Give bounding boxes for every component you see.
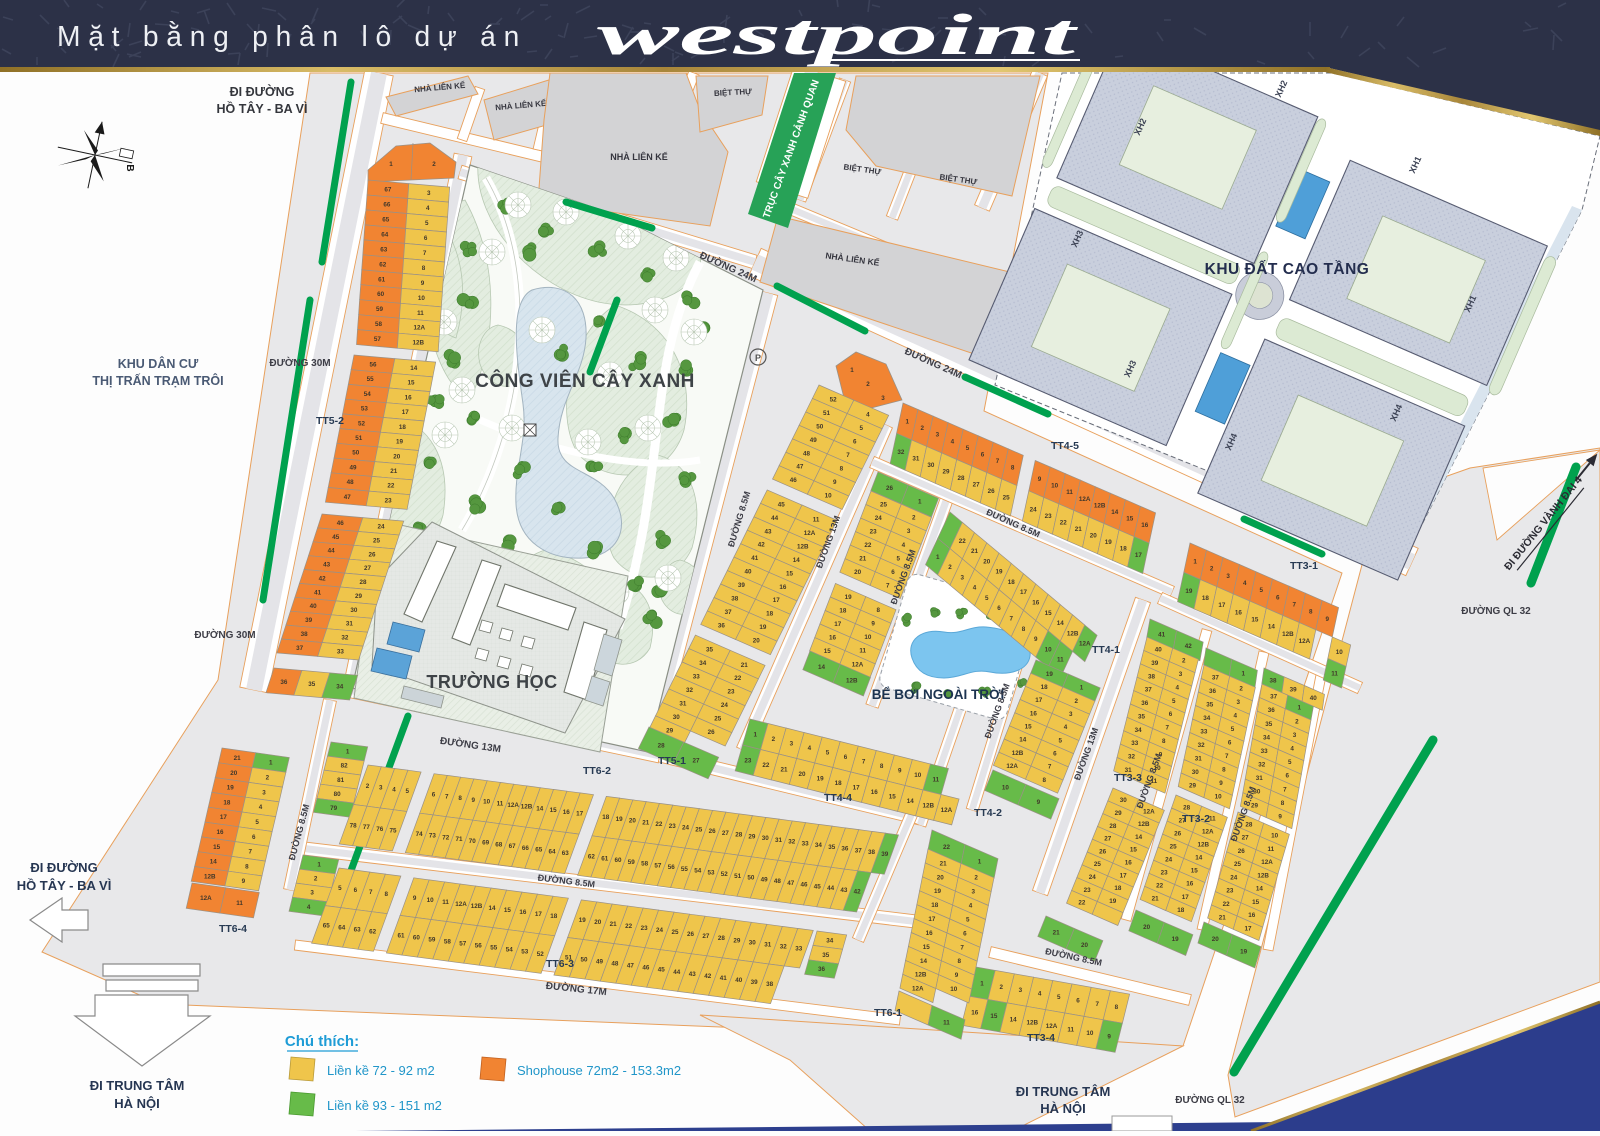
svg-text:22: 22 — [655, 821, 663, 828]
svg-text:40: 40 — [735, 977, 743, 984]
svg-text:39: 39 — [305, 617, 313, 624]
svg-text:26: 26 — [1174, 830, 1182, 837]
svg-text:35: 35 — [822, 952, 830, 959]
svg-text:8: 8 — [877, 607, 881, 614]
svg-text:20: 20 — [854, 569, 862, 576]
svg-text:14: 14 — [1268, 624, 1276, 631]
svg-text:5: 5 — [425, 220, 429, 227]
svg-text:10: 10 — [1336, 649, 1344, 656]
svg-text:46: 46 — [800, 882, 808, 889]
svg-text:10: 10 — [825, 492, 833, 499]
svg-text:8: 8 — [1309, 609, 1313, 616]
svg-text:26: 26 — [708, 729, 716, 736]
svg-text:NHÀ LIÊN KẾ: NHÀ LIÊN KẾ — [610, 151, 668, 162]
svg-text:18: 18 — [1041, 684, 1049, 691]
svg-text:5: 5 — [1288, 759, 1292, 766]
svg-text:21: 21 — [1053, 930, 1061, 937]
svg-text:23: 23 — [1084, 887, 1092, 894]
svg-text:54: 54 — [506, 947, 514, 954]
svg-text:2: 2 — [1210, 566, 1214, 573]
svg-text:5: 5 — [985, 595, 989, 602]
svg-text:24: 24 — [1230, 875, 1238, 882]
svg-text:65: 65 — [382, 216, 390, 223]
svg-text:28: 28 — [1183, 804, 1191, 811]
svg-text:46: 46 — [642, 965, 650, 972]
svg-text:7: 7 — [886, 582, 890, 589]
svg-text:TRƯỜNG HỌC: TRƯỜNG HỌC — [426, 671, 557, 692]
svg-text:14: 14 — [1019, 737, 1027, 744]
svg-text:76: 76 — [376, 826, 384, 833]
svg-text:80: 80 — [334, 791, 342, 798]
svg-text:10: 10 — [950, 986, 958, 993]
svg-text:12A: 12A — [455, 901, 467, 908]
svg-text:16: 16 — [971, 1010, 979, 1017]
svg-text:55: 55 — [490, 945, 498, 952]
svg-text:TT4-4: TT4-4 — [824, 792, 852, 804]
svg-text:3: 3 — [310, 890, 314, 897]
svg-text:12B: 12B — [1282, 631, 1294, 638]
svg-text:1: 1 — [389, 161, 393, 168]
svg-text:11: 11 — [1209, 816, 1216, 823]
svg-text:19: 19 — [1105, 539, 1113, 546]
svg-text:2: 2 — [999, 984, 1003, 991]
svg-text:17: 17 — [1182, 894, 1190, 901]
svg-text:1: 1 — [754, 731, 758, 738]
svg-text:59: 59 — [628, 859, 636, 866]
svg-text:50: 50 — [352, 450, 360, 457]
svg-text:30: 30 — [673, 714, 681, 721]
svg-text:36: 36 — [1209, 688, 1217, 695]
svg-text:23: 23 — [641, 925, 649, 932]
svg-text:10: 10 — [1086, 1030, 1094, 1037]
svg-text:54: 54 — [364, 391, 372, 398]
svg-text:30: 30 — [762, 835, 770, 842]
svg-text:8: 8 — [385, 891, 389, 898]
svg-text:45: 45 — [814, 883, 822, 890]
svg-text:2: 2 — [912, 515, 916, 522]
svg-text:15: 15 — [1025, 723, 1033, 730]
svg-text:31: 31 — [679, 700, 687, 707]
svg-text:18: 18 — [1120, 546, 1128, 553]
svg-text:20: 20 — [594, 919, 602, 926]
svg-text:8: 8 — [245, 863, 249, 870]
svg-text:19: 19 — [579, 917, 587, 924]
svg-text:TT4-5: TT4-5 — [1051, 440, 1079, 452]
svg-text:Chú thích:: Chú thích: — [285, 1033, 359, 1050]
svg-text:23: 23 — [870, 529, 878, 536]
svg-text:12B: 12B — [471, 903, 483, 910]
svg-text:48: 48 — [774, 878, 782, 885]
svg-text:77: 77 — [363, 824, 371, 831]
svg-text:12A: 12A — [1006, 763, 1018, 770]
svg-text:19: 19 — [934, 888, 942, 895]
svg-text:67: 67 — [384, 187, 392, 194]
svg-text:22: 22 — [734, 675, 742, 682]
svg-text:49: 49 — [596, 959, 604, 966]
svg-text:41: 41 — [751, 555, 759, 562]
svg-text:56: 56 — [668, 864, 676, 871]
svg-text:49: 49 — [810, 437, 818, 444]
svg-text:81: 81 — [337, 777, 345, 784]
svg-text:3: 3 — [1069, 711, 1073, 718]
svg-text:20: 20 — [393, 453, 401, 460]
svg-text:6: 6 — [1076, 997, 1080, 1004]
svg-text:14: 14 — [1010, 1016, 1018, 1023]
svg-text:4: 4 — [1064, 724, 1068, 731]
svg-text:40: 40 — [310, 603, 318, 610]
svg-text:51: 51 — [823, 410, 831, 417]
svg-text:1: 1 — [918, 498, 922, 505]
svg-text:19: 19 — [995, 569, 1003, 576]
svg-text:60: 60 — [377, 291, 385, 298]
svg-text:westpoint: westpoint — [597, 2, 1079, 67]
svg-text:14: 14 — [410, 365, 418, 372]
svg-text:17: 17 — [1020, 589, 1028, 596]
svg-text:15: 15 — [504, 907, 512, 914]
svg-text:19: 19 — [1185, 588, 1193, 595]
svg-text:9: 9 — [833, 479, 837, 486]
svg-text:19: 19 — [396, 439, 404, 446]
svg-text:38: 38 — [731, 596, 739, 603]
svg-text:59: 59 — [428, 937, 436, 944]
svg-text:22: 22 — [1223, 901, 1231, 908]
svg-text:1: 1 — [1242, 670, 1246, 677]
svg-text:17: 17 — [535, 911, 543, 918]
svg-text:P: P — [755, 353, 761, 363]
svg-text:21: 21 — [741, 662, 749, 669]
svg-text:10: 10 — [1051, 483, 1059, 490]
svg-text:12B: 12B — [413, 340, 425, 347]
svg-text:9: 9 — [1325, 616, 1329, 623]
svg-text:60: 60 — [614, 857, 622, 864]
svg-text:28: 28 — [718, 935, 726, 942]
svg-text:50: 50 — [747, 875, 755, 882]
svg-text:5: 5 — [1058, 737, 1062, 744]
svg-text:53: 53 — [707, 869, 715, 876]
svg-text:5: 5 — [338, 885, 342, 892]
svg-text:75: 75 — [389, 828, 397, 835]
svg-text:37: 37 — [855, 847, 863, 854]
svg-text:35: 35 — [308, 681, 316, 688]
svg-text:14: 14 — [210, 859, 218, 866]
svg-text:3: 3 — [936, 432, 940, 439]
svg-text:11: 11 — [1057, 657, 1064, 664]
svg-text:2: 2 — [1239, 686, 1243, 693]
svg-text:17: 17 — [220, 814, 228, 821]
svg-text:30: 30 — [350, 607, 358, 614]
svg-text:ĐƯỜNG QL 32: ĐƯỜNG QL 32 — [1175, 1093, 1245, 1106]
svg-text:20: 20 — [230, 770, 238, 777]
svg-text:18: 18 — [1008, 579, 1016, 586]
svg-text:9: 9 — [1278, 814, 1282, 821]
svg-text:25: 25 — [671, 929, 679, 936]
svg-text:TT6-1: TT6-1 — [874, 1007, 902, 1019]
svg-text:14: 14 — [920, 958, 928, 965]
svg-text:30: 30 — [927, 462, 935, 469]
svg-text:20: 20 — [1143, 924, 1151, 931]
svg-text:17: 17 — [1120, 872, 1128, 879]
svg-text:29: 29 — [748, 833, 756, 840]
svg-text:2: 2 — [974, 875, 978, 882]
svg-text:40: 40 — [1310, 695, 1318, 702]
svg-text:15: 15 — [786, 570, 794, 577]
svg-text:1: 1 — [906, 419, 910, 426]
svg-text:8: 8 — [1162, 738, 1166, 745]
svg-text:51: 51 — [355, 435, 363, 442]
svg-text:Mặt bằng phân lô dự án: Mặt bằng phân lô dự án — [57, 20, 527, 53]
svg-text:7: 7 — [1048, 764, 1052, 771]
svg-text:62: 62 — [379, 261, 387, 268]
svg-text:49: 49 — [761, 876, 769, 883]
svg-text:38: 38 — [868, 849, 876, 856]
svg-text:19: 19 — [1109, 898, 1117, 905]
svg-text:5: 5 — [966, 917, 970, 924]
svg-text:15: 15 — [990, 1013, 998, 1020]
svg-text:12B: 12B — [1257, 872, 1269, 879]
svg-text:29: 29 — [942, 469, 950, 476]
svg-text:25: 25 — [714, 716, 722, 723]
svg-text:6: 6 — [963, 930, 967, 937]
svg-text:37: 37 — [1145, 687, 1153, 694]
svg-text:6: 6 — [844, 754, 848, 761]
svg-text:17: 17 — [1135, 552, 1143, 559]
svg-text:28: 28 — [1109, 823, 1117, 830]
svg-text:64: 64 — [381, 231, 389, 238]
svg-text:21: 21 — [1075, 526, 1083, 533]
svg-text:TT3-4: TT3-4 — [1027, 1032, 1055, 1044]
svg-text:25: 25 — [880, 502, 888, 509]
svg-text:20: 20 — [983, 558, 991, 565]
svg-text:1: 1 — [1298, 705, 1302, 712]
svg-text:39: 39 — [881, 851, 889, 858]
svg-text:3: 3 — [379, 785, 383, 792]
svg-text:14: 14 — [1135, 834, 1143, 841]
svg-text:41: 41 — [720, 975, 728, 982]
svg-text:23: 23 — [744, 757, 752, 764]
svg-text:KHU DÂN CƯ: KHU DÂN CƯ — [118, 356, 199, 371]
svg-text:53: 53 — [521, 949, 529, 956]
svg-text:65: 65 — [323, 923, 331, 930]
svg-text:6: 6 — [1286, 773, 1290, 780]
svg-text:1: 1 — [1193, 559, 1197, 566]
svg-text:64: 64 — [548, 849, 556, 856]
svg-text:17: 17 — [928, 916, 936, 923]
svg-text:45: 45 — [778, 501, 786, 508]
svg-text:48: 48 — [347, 479, 355, 486]
svg-text:43: 43 — [323, 562, 331, 569]
svg-text:12B: 12B — [923, 802, 935, 809]
svg-text:15: 15 — [1126, 515, 1134, 522]
svg-text:11: 11 — [859, 648, 866, 655]
svg-text:49: 49 — [349, 464, 357, 471]
svg-text:5: 5 — [860, 425, 864, 432]
svg-text:6: 6 — [252, 834, 256, 841]
svg-text:12B: 12B — [915, 972, 927, 979]
svg-text:5: 5 — [966, 445, 970, 452]
svg-text:31: 31 — [1256, 775, 1264, 782]
svg-text:50: 50 — [580, 957, 588, 964]
svg-text:Liền kề 72 - 92 m2: Liền kề 72 - 92 m2 — [327, 1063, 435, 1078]
svg-text:11: 11 — [813, 517, 820, 524]
svg-text:4: 4 — [808, 745, 812, 752]
svg-text:24: 24 — [682, 825, 690, 832]
svg-text:31: 31 — [775, 837, 783, 844]
svg-text:9: 9 — [421, 280, 425, 287]
svg-text:24: 24 — [656, 927, 664, 934]
svg-text:6: 6 — [1169, 711, 1173, 718]
svg-text:17: 17 — [773, 597, 781, 604]
svg-text:58: 58 — [641, 861, 649, 868]
svg-text:4: 4 — [969, 903, 973, 910]
svg-text:ĐI ĐƯỜNG: ĐI ĐƯỜNG — [230, 84, 295, 99]
svg-text:14: 14 — [1195, 855, 1203, 862]
svg-text:19: 19 — [759, 624, 767, 631]
svg-text:41: 41 — [1158, 631, 1166, 638]
svg-text:22: 22 — [387, 483, 395, 490]
svg-text:4: 4 — [1243, 580, 1247, 587]
svg-text:8: 8 — [840, 465, 844, 472]
svg-text:ĐI TRUNG TÂM: ĐI TRUNG TÂM — [1016, 1084, 1111, 1099]
svg-text:29: 29 — [355, 593, 363, 600]
svg-text:10: 10 — [914, 772, 922, 779]
svg-text:5: 5 — [896, 555, 900, 562]
svg-text:12A: 12A — [852, 661, 864, 668]
svg-text:4: 4 — [1290, 746, 1294, 753]
svg-text:32: 32 — [686, 687, 694, 694]
svg-text:2: 2 — [266, 775, 270, 782]
svg-text:2: 2 — [866, 381, 870, 388]
svg-text:34: 34 — [699, 660, 707, 667]
svg-text:47: 47 — [796, 464, 804, 471]
svg-text:14: 14 — [488, 905, 496, 912]
svg-text:33: 33 — [1261, 748, 1269, 755]
svg-text:KHU ĐẤT CAO TẦNG: KHU ĐẤT CAO TẦNG — [1205, 261, 1370, 278]
svg-text:8: 8 — [958, 958, 962, 965]
svg-text:36: 36 — [818, 966, 826, 973]
svg-text:30: 30 — [1192, 769, 1200, 776]
svg-text:26: 26 — [886, 485, 894, 492]
svg-text:36: 36 — [280, 679, 288, 686]
svg-text:33: 33 — [1200, 729, 1208, 736]
svg-text:15: 15 — [407, 380, 415, 387]
svg-text:53: 53 — [361, 406, 369, 413]
svg-text:59: 59 — [376, 306, 384, 313]
svg-text:74: 74 — [416, 831, 424, 838]
svg-text:14: 14 — [1256, 886, 1264, 893]
svg-text:12B: 12B — [1027, 1020, 1039, 1027]
svg-text:ĐƯỜNG 30M: ĐƯỜNG 30M — [194, 628, 255, 641]
svg-text:33: 33 — [337, 649, 345, 656]
svg-text:11: 11 — [932, 776, 939, 783]
svg-text:50: 50 — [816, 423, 824, 430]
svg-text:1: 1 — [346, 749, 350, 756]
svg-text:8: 8 — [1222, 767, 1226, 774]
svg-text:29: 29 — [666, 727, 674, 734]
svg-text:4: 4 — [1038, 991, 1042, 998]
svg-text:18: 18 — [931, 902, 939, 909]
svg-text:6: 6 — [853, 439, 857, 446]
svg-text:21: 21 — [940, 860, 948, 867]
svg-text:20: 20 — [629, 818, 637, 825]
svg-text:HÀ NỘI: HÀ NỘI — [114, 1096, 160, 1111]
svg-text:12A: 12A — [507, 802, 519, 809]
svg-text:9: 9 — [1037, 799, 1041, 806]
svg-text:7: 7 — [1292, 602, 1296, 609]
svg-text:18: 18 — [766, 611, 774, 618]
svg-text:52: 52 — [721, 871, 729, 878]
svg-text:37: 37 — [296, 645, 304, 652]
svg-text:18: 18 — [223, 799, 231, 806]
svg-text:9: 9 — [472, 797, 476, 804]
svg-text:61: 61 — [397, 932, 405, 939]
svg-text:66: 66 — [383, 201, 391, 208]
svg-text:11: 11 — [442, 899, 449, 906]
svg-text:16: 16 — [1235, 609, 1243, 616]
svg-text:32: 32 — [1128, 754, 1136, 761]
svg-text:4: 4 — [973, 585, 977, 592]
svg-text:40: 40 — [744, 569, 752, 576]
svg-text:16: 16 — [779, 584, 787, 591]
svg-text:52: 52 — [358, 420, 366, 427]
svg-text:24: 24 — [721, 702, 729, 709]
svg-text:55: 55 — [681, 866, 689, 873]
svg-text:66: 66 — [522, 845, 530, 852]
svg-text:11: 11 — [1331, 670, 1338, 677]
svg-text:54: 54 — [694, 868, 702, 875]
svg-text:5: 5 — [406, 788, 410, 795]
svg-text:31: 31 — [764, 941, 772, 948]
svg-text:43: 43 — [840, 887, 848, 894]
svg-text:58: 58 — [444, 939, 452, 946]
svg-text:16: 16 — [216, 829, 224, 836]
svg-text:5: 5 — [1231, 726, 1235, 733]
svg-text:B: B — [124, 164, 135, 171]
svg-text:21: 21 — [390, 468, 398, 475]
svg-text:16: 16 — [1032, 600, 1040, 607]
svg-text:34: 34 — [336, 684, 344, 691]
svg-text:61: 61 — [601, 855, 609, 862]
svg-text:TT5-1: TT5-1 — [658, 755, 686, 767]
svg-text:22: 22 — [959, 538, 967, 545]
svg-text:8: 8 — [1281, 800, 1285, 807]
svg-text:35: 35 — [1138, 713, 1146, 720]
svg-text:28: 28 — [658, 743, 666, 750]
svg-text:36: 36 — [841, 846, 849, 853]
svg-text:55: 55 — [367, 376, 375, 383]
svg-text:21: 21 — [234, 755, 242, 762]
svg-text:12A: 12A — [1079, 641, 1091, 648]
svg-text:60: 60 — [413, 935, 421, 942]
svg-text:37: 37 — [1212, 675, 1220, 682]
svg-text:32: 32 — [1258, 762, 1266, 769]
svg-text:38: 38 — [301, 631, 309, 638]
svg-text:8: 8 — [1115, 1004, 1119, 1011]
svg-text:24: 24 — [1089, 874, 1097, 881]
svg-text:16: 16 — [1141, 522, 1149, 529]
svg-text:7: 7 — [1010, 616, 1014, 623]
svg-text:4: 4 — [307, 904, 311, 911]
svg-text:3: 3 — [427, 190, 431, 197]
svg-text:12B: 12B — [1138, 821, 1150, 828]
svg-text:32: 32 — [1198, 742, 1206, 749]
svg-text:37: 37 — [1270, 694, 1278, 701]
svg-text:6: 6 — [981, 451, 985, 458]
svg-text:24: 24 — [377, 524, 385, 531]
svg-text:14: 14 — [907, 798, 915, 805]
svg-text:3: 3 — [790, 740, 794, 747]
svg-text:21: 21 — [859, 556, 867, 563]
svg-text:10: 10 — [418, 295, 426, 302]
